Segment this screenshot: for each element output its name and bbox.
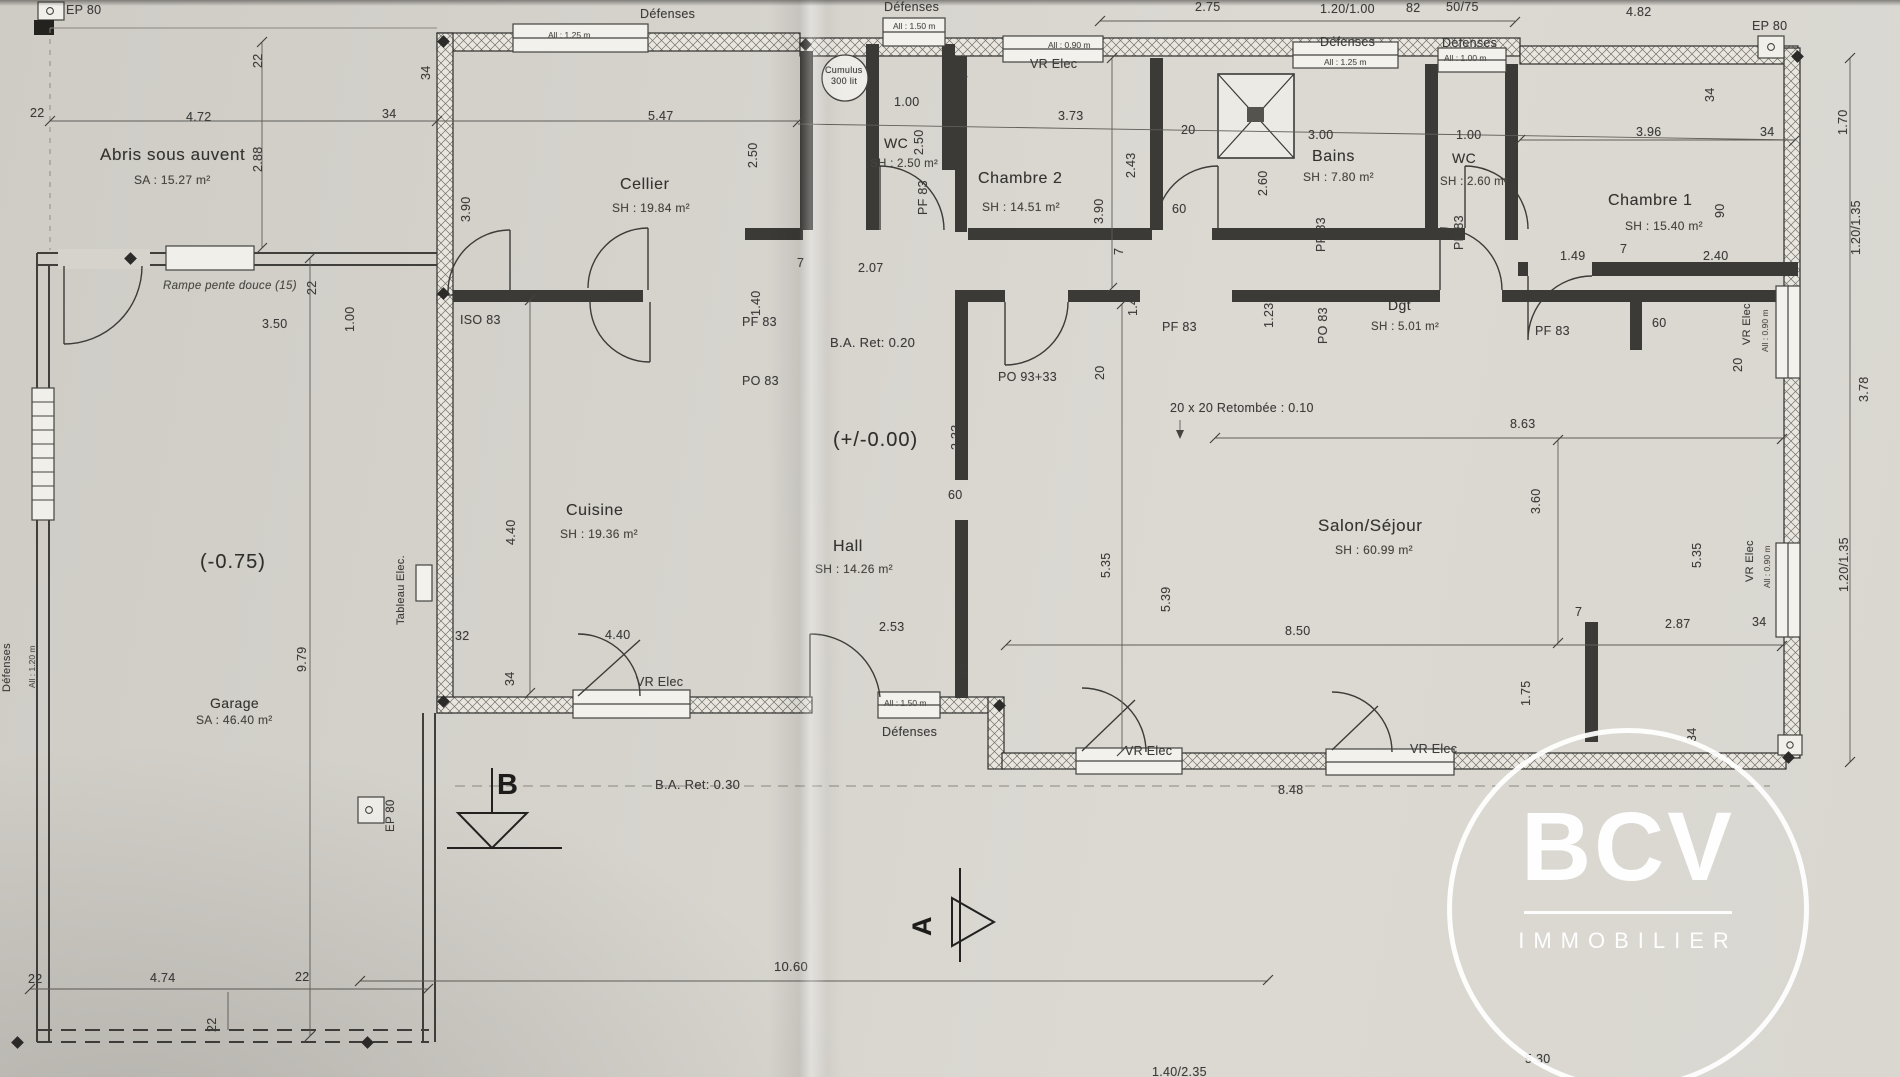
- dim: 34: [504, 671, 517, 686]
- ba-ret-020: B.A. Ret: 0.20: [830, 336, 915, 350]
- dim: 1.00: [344, 306, 357, 332]
- room-cuisine: Cuisine: [566, 503, 624, 520]
- dim: 2.50: [747, 142, 760, 168]
- dim: 1.23: [1263, 302, 1276, 328]
- pf83-label: PF 83: [917, 180, 930, 215]
- dim: 2.43: [1125, 152, 1138, 178]
- vrelec-label: VR Elec: [1742, 303, 1754, 345]
- dim: 3.50: [262, 318, 288, 331]
- dim: 3.90: [460, 196, 473, 222]
- ep80-label: EP 80: [1752, 20, 1787, 33]
- vrelec-label: VR Elec: [1125, 745, 1172, 758]
- iso83-label: ISO 83: [460, 314, 501, 327]
- pf83-label: PF 83: [1162, 321, 1197, 334]
- dim: 1.40/2.35: [1152, 1066, 1207, 1077]
- defenses-label: Défenses: [884, 1, 939, 14]
- vrelec-label: VR Elec: [1745, 540, 1757, 582]
- dim: 34: [1752, 616, 1767, 629]
- dim: 20: [1732, 357, 1745, 372]
- allowance-label: All : 0.90 m: [1761, 309, 1770, 352]
- bcv-logo-text: BCV: [1452, 791, 1804, 903]
- dim: 1.75: [1520, 680, 1533, 706]
- ep80-label: EP 80: [385, 799, 397, 832]
- allowance-label: All : 0.90 m: [1048, 41, 1091, 50]
- dim: 3.60: [1530, 488, 1543, 514]
- shower-icon: [1218, 74, 1294, 158]
- room-hall-area: SH : 14.26 m²: [815, 563, 893, 576]
- vrelec-label: VR Elec: [1410, 743, 1457, 756]
- allowance-label: All : 1.25 m: [1324, 58, 1367, 67]
- cumulus-label: Cumulus: [825, 66, 863, 75]
- room-garage: Garage: [210, 696, 259, 711]
- room-abris: Abris sous auvent: [100, 146, 245, 164]
- allowance-label: All : 1.20 m: [28, 645, 37, 688]
- dim: 10.60: [774, 960, 808, 974]
- dim: 4.72: [186, 111, 212, 124]
- room-wc2: WC: [1452, 151, 1476, 166]
- dim: 1.20/1.35: [1850, 200, 1863, 255]
- allowance-label: All : 1.50 m: [893, 22, 936, 31]
- dim: 2.53: [879, 621, 905, 634]
- allowance-label: All : 1.25 m: [548, 31, 591, 40]
- defenses-label: Défenses: [2, 643, 14, 692]
- room-wc1: WC: [884, 136, 908, 151]
- dim: 2.60: [1257, 170, 1270, 196]
- defenses-label: Défenses: [640, 8, 695, 21]
- dim: 22: [252, 53, 265, 68]
- dim: 60: [948, 489, 963, 502]
- po83-label: PO 83: [742, 375, 779, 388]
- section-marker-a: [952, 868, 994, 962]
- dim: 5.35: [1691, 542, 1704, 568]
- bcv-logo-subtext: IMMOBILIER: [1452, 928, 1804, 954]
- dim: 7: [797, 257, 804, 270]
- dim: 7: [1620, 243, 1627, 256]
- vrelec-label: VR Elec: [1030, 58, 1077, 71]
- defenses-label: Défenses: [882, 726, 937, 739]
- ba-ret-030: B.A. Ret: 0.30: [655, 778, 740, 792]
- dim: 4.40: [605, 629, 631, 642]
- room-chambre1-area: SH : 15.40 m²: [1625, 220, 1703, 233]
- dim: 1.20/1.35: [1838, 537, 1851, 592]
- dim: 5.35: [1100, 552, 1113, 578]
- retombee-note: 20 x 20 Retombée : 0.10: [1170, 402, 1314, 415]
- cumulus-label: 300 lit: [831, 77, 857, 86]
- defenses-label: Défenses: [1320, 36, 1375, 49]
- dim: 1.00: [1456, 129, 1482, 142]
- room-cuisine-area: SH : 19.36 m²: [560, 528, 638, 541]
- dim: 4.74: [150, 972, 176, 985]
- dim: 3.90: [1093, 198, 1106, 224]
- dim: 34: [1704, 87, 1717, 102]
- dim: 2.00: [954, 592, 967, 618]
- allowance-label: All : 1.50 m: [884, 699, 927, 708]
- defenses-label: Défenses: [1442, 37, 1497, 50]
- pf83-label: PF 83: [1453, 215, 1466, 250]
- dim: 32: [455, 630, 470, 643]
- dim: 5.39: [1160, 586, 1173, 612]
- allowance-label: All : 0.90 m: [1763, 545, 1772, 588]
- dim: 1.00: [894, 96, 920, 109]
- dim: 4.40: [505, 519, 518, 545]
- dim: 8.50: [1285, 625, 1311, 638]
- room-cellier-area: SH : 19.84 m²: [612, 202, 690, 215]
- garage-walls: [37, 253, 437, 1042]
- section-a-label: A: [908, 916, 936, 936]
- dim: 22: [306, 280, 319, 295]
- dim: 90: [1714, 203, 1727, 218]
- room-salon-area: SH : 60.99 m²: [1335, 544, 1413, 557]
- dim: 1.49: [1560, 250, 1586, 263]
- dim: 1.20/1.00: [1320, 3, 1375, 16]
- dim: 9.79: [296, 646, 309, 672]
- room-chambre2-area: SH : 14.51 m²: [982, 201, 1060, 214]
- dim: 2.87: [1665, 618, 1691, 631]
- retombee-arrow: [1176, 430, 1184, 439]
- room-abris-area: SA : 15.27 m²: [134, 174, 211, 187]
- dim: 34: [382, 108, 397, 121]
- room-bains-area: SH : 7.80 m²: [1303, 171, 1374, 184]
- dim: 4.82: [1626, 6, 1652, 19]
- dim: 1.70: [1837, 109, 1850, 135]
- pf83-label: PF 83: [1315, 217, 1328, 252]
- allowance-label: All : 1.00 m: [1444, 54, 1487, 63]
- dim: 60: [1652, 317, 1667, 330]
- dim: 8.48: [1278, 784, 1304, 797]
- dim: 3.78: [1858, 376, 1871, 402]
- pf83-label: PF 83: [742, 316, 777, 329]
- dim: 22: [295, 971, 310, 984]
- dim: 7: [961, 75, 968, 88]
- dim: 82: [1406, 2, 1421, 15]
- dim: 22: [28, 973, 43, 986]
- interior-walls: [453, 44, 1800, 742]
- bcv-logo: BCV IMMOBILIER: [1447, 728, 1809, 1077]
- dim: 3.96: [1636, 126, 1662, 139]
- dim: 20: [1094, 365, 1107, 380]
- pf83-label: PF 83: [1535, 325, 1570, 338]
- dim: 2.07: [858, 262, 884, 275]
- room-dgt-area: SH : 5.01 m²: [1371, 321, 1439, 333]
- room-chambre2: Chambre 2: [978, 171, 1063, 188]
- room-salon: Salon/Séjour: [1318, 517, 1423, 535]
- dim: 2.75: [1195, 1, 1221, 14]
- dim: 1.40: [1127, 290, 1140, 316]
- rampe-note: Rampe pente douce (15): [163, 280, 297, 292]
- dim: 1.40: [750, 290, 763, 316]
- section-b-label: B: [497, 770, 518, 800]
- po9333-label: PO 93+33: [998, 371, 1057, 384]
- room-bains: Bains: [1312, 149, 1355, 166]
- dim: 7: [1575, 606, 1582, 619]
- dim: 3.73: [1058, 110, 1084, 123]
- dim: 20: [1181, 124, 1196, 137]
- level-garage: (-0.75): [200, 552, 266, 573]
- room-garage-area: SA : 46.40 m²: [196, 714, 273, 727]
- dim: 2.50: [913, 129, 926, 155]
- vrelec-label: VR Elec: [636, 676, 683, 689]
- room-wc2-area: SH : 2.60 m²: [1440, 176, 1508, 188]
- tableau-elec-label: Tableau Elec.: [396, 555, 408, 625]
- dim: 34: [420, 65, 433, 80]
- dim: 50/75: [1446, 1, 1479, 14]
- room-dgt: Dgt: [1388, 298, 1411, 313]
- ep80-label: EP 80: [66, 4, 101, 17]
- dim: 34: [1760, 126, 1775, 139]
- dim: 34: [955, 663, 968, 678]
- dim: 8.63: [1510, 418, 1536, 431]
- po83-label: PO 83: [1317, 307, 1330, 344]
- dim: 5.47: [648, 110, 674, 123]
- room-wc1-area: SH : 2.50 m²: [870, 158, 938, 170]
- bcv-logo-rule: [1524, 911, 1732, 914]
- room-cellier: Cellier: [620, 177, 670, 194]
- dim: 22: [206, 1017, 219, 1032]
- dim: 3.00: [1308, 129, 1334, 142]
- dim: 22: [30, 107, 45, 120]
- dim: 2.88: [252, 146, 265, 172]
- room-chambre1: Chambre 1: [1608, 193, 1693, 210]
- dim: 2.33: [950, 424, 963, 450]
- dim: 60: [1172, 203, 1187, 216]
- dim: 7: [1113, 248, 1126, 255]
- floor-plan-photo: EP 80 22 4.72 34 22 2.88 Abris sous auve…: [0, 0, 1900, 1077]
- room-hall: Hall: [833, 539, 863, 556]
- level-rdc: (+/-0.00): [833, 430, 918, 451]
- dim: 2.40: [1703, 250, 1729, 263]
